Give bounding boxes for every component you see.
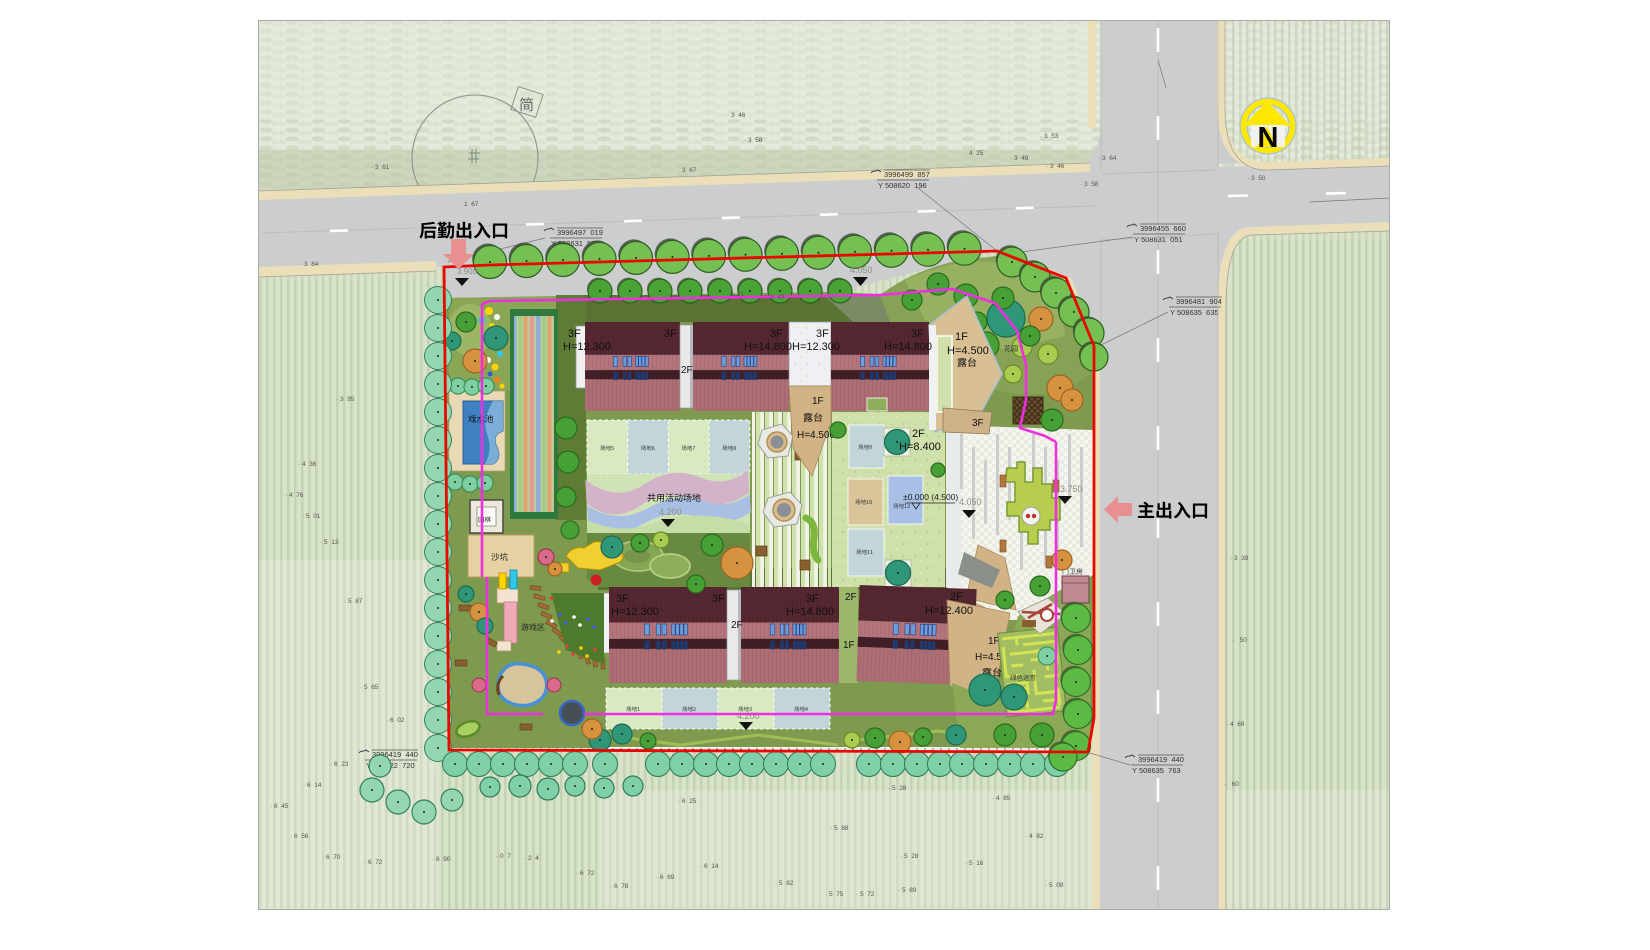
svg-text:· 5 13: · 5 13 — [320, 539, 339, 546]
svg-text:3F: 3F — [712, 593, 725, 605]
svg-text:3996481 904: 3996481 904 — [1176, 297, 1222, 306]
svg-text:3F: 3F — [806, 593, 819, 605]
svg-text:· 50: · 50 — [1232, 637, 1247, 644]
svg-text:3F: 3F — [664, 328, 677, 340]
svg-text:· 4 82: · 4 82 — [1025, 833, 1044, 840]
svg-text:1F: 1F — [955, 331, 968, 343]
svg-text:4.200: 4.200 — [659, 507, 682, 517]
svg-text:· 2 4: · 2 4 — [524, 855, 539, 862]
svg-text:· 3 61: · 3 61 — [371, 164, 390, 171]
svg-text:· 5 65: · 5 65 — [360, 684, 379, 691]
svg-text:· 6 25: · 6 25 — [678, 798, 697, 805]
svg-text:H=12.300: H=12.300 — [792, 341, 840, 353]
svg-text:H=12.300: H=12.300 — [563, 341, 611, 353]
svg-text:H=14.800: H=14.800 — [744, 341, 792, 353]
svg-text:· 3 39: · 3 39 — [1230, 555, 1249, 562]
svg-text:· 6 90: · 6 90 — [432, 856, 451, 863]
svg-text:· 6 70: · 6 70 — [322, 854, 341, 861]
svg-text:· 5 28: · 5 28 — [900, 853, 919, 860]
svg-text:· 3 58: · 3 58 — [744, 137, 763, 144]
svg-text:· 5 08: · 5 08 — [1045, 882, 1064, 889]
svg-text:N: N — [1258, 122, 1279, 154]
svg-text:· 4 76: · 4 76 — [285, 492, 304, 499]
svg-text:H=12.400: H=12.400 — [925, 605, 973, 617]
svg-text:±0.000 (4.500): ±0.000 (4.500) — [903, 492, 958, 502]
svg-text:H=8.400: H=8.400 — [899, 441, 941, 453]
svg-text:· 6 72: · 6 72 — [364, 859, 383, 866]
svg-text:· 6 72: · 6 72 — [576, 870, 595, 877]
svg-text:3F: 3F — [568, 328, 581, 340]
svg-text:· 3 46: · 3 46 — [727, 112, 746, 119]
svg-text:H=12.300: H=12.300 — [611, 606, 659, 618]
svg-text:· 6 69: · 6 69 — [656, 874, 675, 881]
svg-text:· 5 82: · 5 82 — [775, 880, 794, 887]
svg-text:3996499 857: 3996499 857 — [884, 170, 930, 179]
svg-text:· 4 36: · 4 36 — [298, 461, 317, 468]
svg-text:· 6 45: · 6 45 — [270, 803, 289, 810]
svg-text:· 3 46: · 3 46 — [1046, 163, 1065, 170]
svg-text:3F: 3F — [911, 328, 924, 340]
svg-text:· 3 58: · 3 58 — [1080, 181, 1099, 188]
svg-text:· 5 88: · 5 88 — [830, 825, 849, 832]
svg-text:2F: 2F — [845, 592, 857, 603]
svg-text:· 6 02: · 6 02 — [386, 717, 405, 724]
svg-text:3F: 3F — [616, 593, 629, 605]
svg-text:H=4.500: H=4.500 — [947, 345, 989, 357]
svg-text:· 5 16: · 5 16 — [965, 860, 984, 867]
svg-text:3996497 019: 3996497 019 — [557, 228, 603, 237]
svg-text:· 5 75: · 5 75 — [825, 891, 844, 898]
svg-text:· 4 85: · 4 85 — [992, 795, 1011, 802]
svg-text:H=14.800: H=14.800 — [884, 341, 932, 353]
svg-text:· 4 25: · 4 25 — [965, 150, 984, 157]
svg-text:· 5 72: · 5 72 — [856, 891, 875, 898]
svg-text:3996419 440: 3996419 440 — [1138, 755, 1184, 764]
svg-text:· 3 50: · 3 50 — [1247, 175, 1266, 182]
svg-text:· 3 67: · 3 67 — [678, 167, 697, 174]
svg-text:2F: 2F — [681, 365, 693, 376]
svg-text:3.900: 3.900 — [457, 267, 478, 276]
svg-text:Y 508635 635: Y 508635 635 — [1170, 308, 1219, 317]
svg-text:3.750: 3.750 — [1060, 484, 1083, 494]
svg-text:3996455 660: 3996455 660 — [1140, 224, 1186, 233]
svg-text:2F: 2F — [950, 591, 963, 603]
svg-text:· 5 28: · 5 28 — [888, 785, 907, 792]
svg-text:· 3 71: · 3 71 — [726, 291, 745, 298]
svg-text:· 5 87: · 5 87 — [344, 598, 363, 605]
svg-text:· 0 7: · 0 7 — [496, 853, 511, 860]
svg-text:1F: 1F — [812, 396, 824, 407]
svg-text:3F: 3F — [972, 418, 984, 429]
svg-text:· 5 01: · 5 01 — [302, 513, 321, 520]
svg-text:H=14.800: H=14.800 — [786, 606, 834, 618]
svg-text:· 60: · 60 — [1224, 781, 1239, 788]
svg-text:· 3 49: · 3 49 — [1010, 155, 1029, 162]
svg-text:4.050: 4.050 — [959, 497, 982, 507]
svg-text:· 6 78: · 6 78 — [610, 883, 629, 890]
svg-text:· 5 89: · 5 89 — [898, 887, 917, 894]
svg-text:4.200: 4.200 — [737, 711, 760, 721]
svg-text:3F: 3F — [770, 328, 783, 340]
svg-text:· 6 14: · 6 14 — [303, 782, 322, 789]
svg-text:· 3 64: · 3 64 — [1098, 155, 1117, 162]
svg-text:· 6 56: · 6 56 — [290, 833, 309, 840]
svg-text:· 3 43: · 3 43 — [766, 294, 785, 301]
svg-text:· 3 53: · 3 53 — [1040, 133, 1059, 140]
svg-text:· 3 84: · 3 84 — [300, 261, 319, 268]
svg-text:· 3 95: · 3 95 — [336, 396, 355, 403]
svg-text:Y 508635 763: Y 508635 763 — [1132, 766, 1181, 775]
svg-text:· 4 69: · 4 69 — [1226, 721, 1245, 728]
svg-text:4.050: 4.050 — [850, 265, 873, 275]
svg-text:2F: 2F — [731, 620, 743, 631]
svg-text:3F: 3F — [816, 328, 829, 340]
svg-text:1F: 1F — [843, 640, 855, 651]
svg-text:2F: 2F — [912, 428, 925, 440]
svg-text:· 6 14: · 6 14 — [700, 863, 719, 870]
svg-text:· 1 67: · 1 67 — [460, 201, 479, 208]
svg-text:· 6 23: · 6 23 — [330, 761, 349, 768]
